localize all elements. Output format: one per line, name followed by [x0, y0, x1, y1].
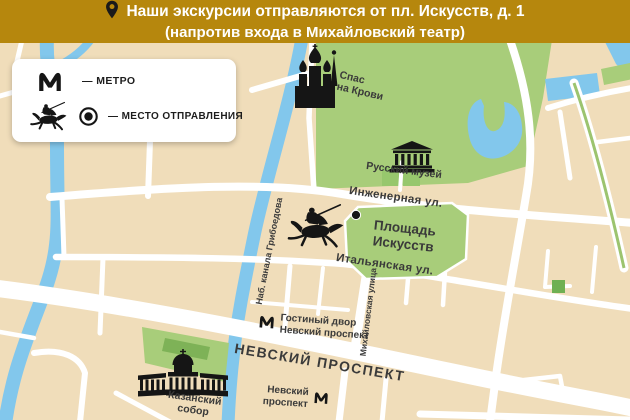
legend-departure-label: — МЕСТО ОТПРАВЛЕНИЯ: [108, 111, 243, 122]
legend-metro-label: — МЕТРО: [82, 75, 135, 87]
spas-na-krovi-church-icon: [288, 44, 342, 115]
horse-rider-icon: [287, 203, 349, 255]
metro-logo-icon: [258, 314, 276, 333]
departure-info-banner: Наши экскурсии отправляются от пл. Искус…: [0, 0, 630, 43]
banner-line2: (напротив входа в Михайловский театр): [165, 24, 465, 43]
map-pin-icon: [105, 0, 126, 24]
map-legend: — МЕТРО: [12, 59, 236, 142]
metro-logo-icon: [313, 391, 330, 409]
map-label-metro-nevsky-prospekt: Невский проспект: [262, 384, 330, 412]
tour-departure-map: Спас на Крови Русский музей Инженерная у…: [0, 0, 630, 420]
departure-ring-icon: [78, 106, 99, 127]
metro-logo-icon: [30, 70, 70, 92]
horse-rider-icon: [30, 101, 70, 132]
banner-line1: Наши экскурсии отправляются от пл. Искус…: [126, 2, 524, 22]
legend-departure-row: — МЕСТО ОТПРАВЛЕНИЯ: [30, 101, 236, 132]
legend-metro-row: — МЕТРО: [30, 70, 236, 92]
